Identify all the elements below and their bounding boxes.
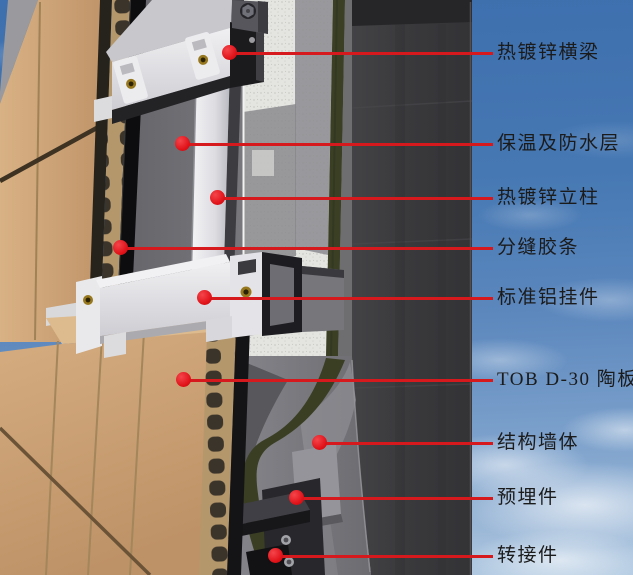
callout-label-galvanized-crossbeam: 热镀锌横梁 xyxy=(497,40,600,66)
callout-dot-standard-aluminum-hanger xyxy=(197,290,212,305)
callout-label-galvanized-column: 热镀锌立柱 xyxy=(497,185,600,211)
callout-dot-adapter-connector xyxy=(268,548,283,563)
callout-line-standard-aluminum-hanger xyxy=(205,297,493,300)
callout-label-structural-wall: 结构墙体 xyxy=(497,430,579,456)
callout-label-insulation-waterproof-layer: 保温及防水层 xyxy=(497,131,620,157)
callout-line-embedded-part xyxy=(297,497,493,500)
callout-dot-tob-d30-ceramic-panel xyxy=(176,372,191,387)
callout-dot-structural-wall xyxy=(312,435,327,450)
callout-line-joint-rubber-strip xyxy=(121,247,493,250)
callout-label-tob-d30-ceramic-panel: TOB D-30 陶板 xyxy=(497,367,633,393)
structural-wall-face xyxy=(352,0,472,575)
callout-dot-insulation-waterproof-layer xyxy=(175,136,190,151)
callout-line-galvanized-column xyxy=(218,197,493,200)
callout-label-adapter-connector: 转接件 xyxy=(497,543,559,569)
callout-label-embedded-part: 预埋件 xyxy=(497,485,559,511)
callout-label-joint-rubber-strip: 分缝胶条 xyxy=(497,235,579,261)
callout-line-tob-d30-ceramic-panel xyxy=(184,379,493,382)
callout-dot-galvanized-crossbeam xyxy=(222,45,237,60)
callout-dot-joint-rubber-strip xyxy=(113,240,128,255)
callout-dot-galvanized-column xyxy=(210,190,225,205)
callout-label-standard-aluminum-hanger: 标准铝挂件 xyxy=(497,285,600,311)
callout-line-galvanized-crossbeam xyxy=(230,52,493,55)
callout-line-structural-wall xyxy=(320,442,493,445)
callout-dot-embedded-part xyxy=(289,490,304,505)
callout-line-insulation-waterproof-layer xyxy=(183,143,493,146)
callout-line-adapter-connector xyxy=(276,555,493,558)
facade-detail-diagram: 热镀锌横梁 保温及防水层 热镀锌立柱 分缝胶条 标准铝挂件 TOB D-30 陶… xyxy=(0,0,633,575)
